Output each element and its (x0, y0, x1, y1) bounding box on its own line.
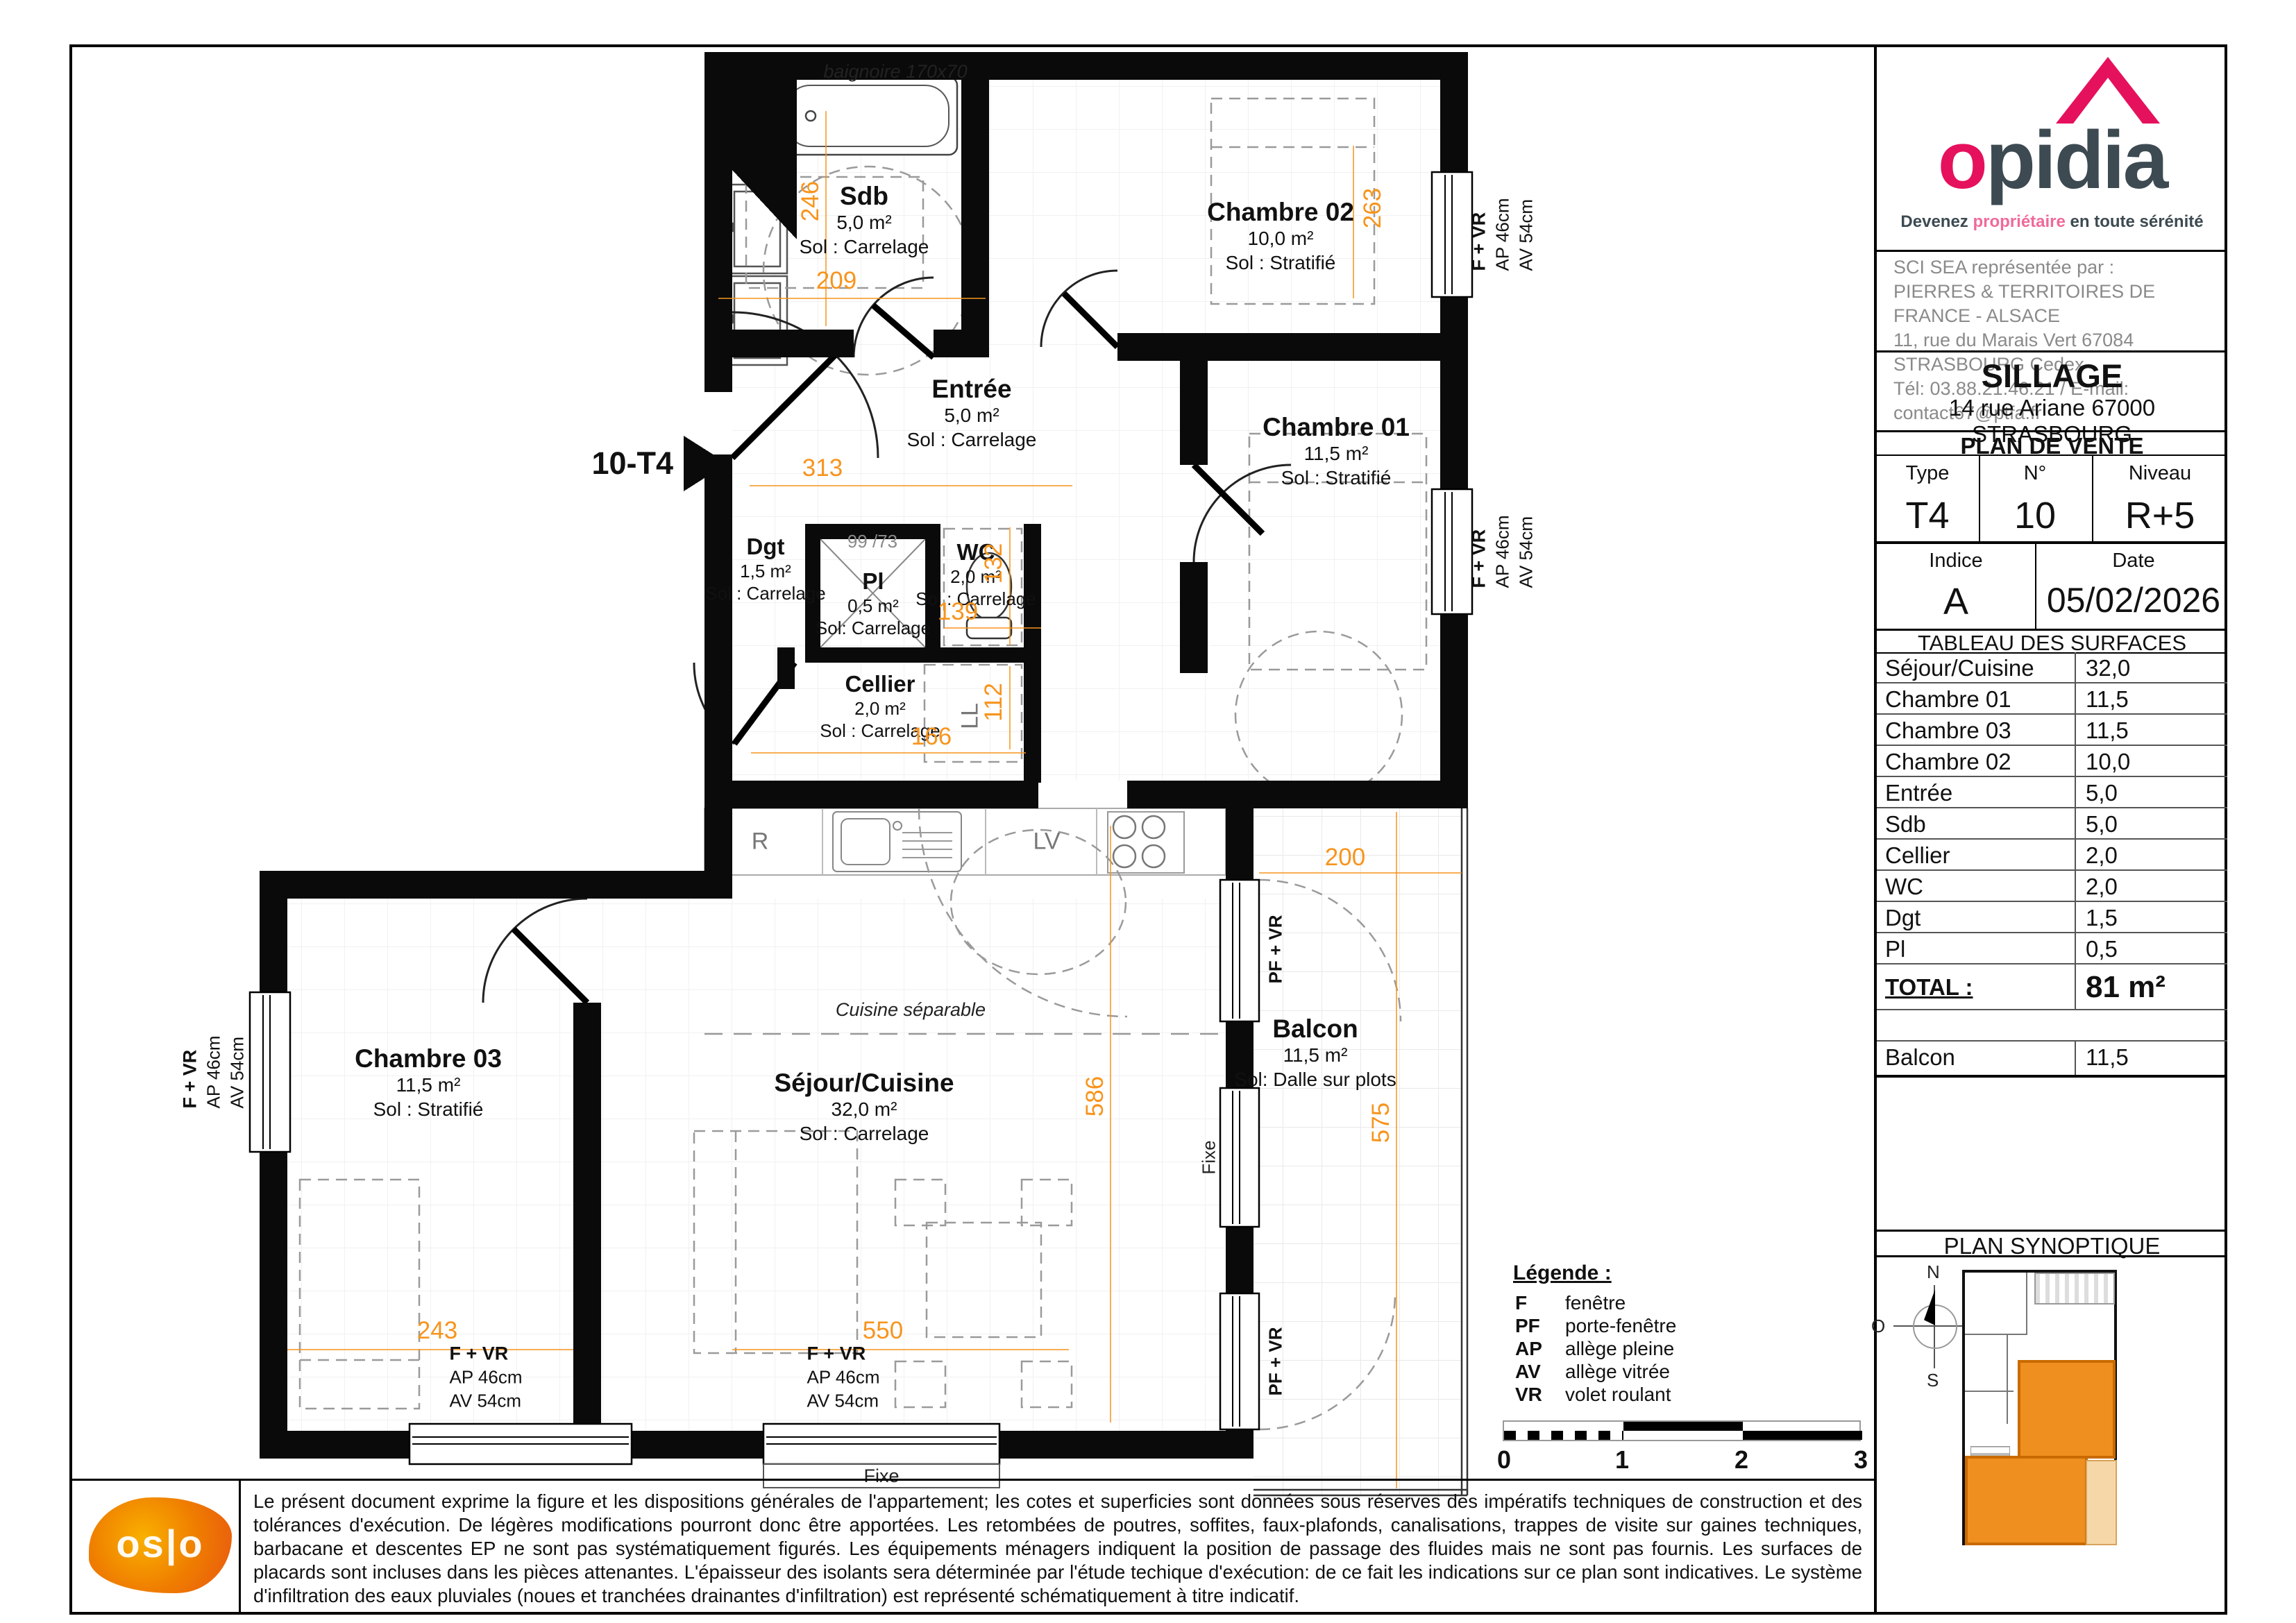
dim-chambre02-window: 263 (1359, 188, 1387, 228)
synoptique-apartment-upper (2018, 1360, 2116, 1459)
dim-balcon-width: 200 (1325, 844, 1365, 872)
legend-item-av: AVallège vitrée (1515, 1361, 1670, 1383)
surface-row: Cellier2,0 (1877, 840, 2227, 871)
dim-entree-width: 313 (802, 454, 843, 482)
bathtub-label: baignoire 170x70 (823, 61, 967, 83)
window-label-chambre03: F + VR AP 46cm AV 54cm (178, 1035, 250, 1108)
scale-tick-1: 1 (1615, 1445, 1629, 1475)
dim-sdb-width: 209 (816, 267, 856, 295)
surface-row: Chambre 0111,5 (1877, 683, 2227, 715)
oslo-logo: os|o (89, 1497, 232, 1593)
surface-row: Séjour/Cuisine32,0 (1877, 652, 2227, 683)
room-sejour-cuisine: Séjour/Cuisine 32,0 m² Sol : Carrelage (774, 1069, 954, 1146)
scale-bar (1503, 1420, 1861, 1441)
legend-title: Légende : (1513, 1261, 1612, 1285)
window-label-chambre03-bottom: F + VR AP 46cm AV 54cm (449, 1342, 522, 1413)
date-value: 05/02/2026 (2047, 580, 2220, 620)
indice-value: A (1943, 580, 1968, 623)
fridge-label: R (752, 829, 769, 856)
opidia-roof-icon (2056, 57, 2160, 124)
porte-fenetre-label-1: PF + VR (1265, 915, 1287, 984)
disclaimer-text: Le présent document exprime la figure et… (253, 1490, 1862, 1608)
type-label: Type (1906, 462, 1950, 485)
dim-sejour-height: 586 (1081, 1076, 1109, 1116)
scale-tick-0: 0 (1497, 1445, 1511, 1475)
project-name: SILLAGE (1877, 357, 2227, 395)
room-dgt: Dgt 1,5 m² Sol : Carrelage (705, 534, 825, 605)
synoptique-balcony (2086, 1460, 2117, 1545)
window-label-chambre01: F + VR AP 46cm AV 54cm (1467, 515, 1539, 588)
scale-tick-3: 3 (1854, 1445, 1868, 1475)
dim-wc-width: 139 (938, 598, 978, 626)
surface-balcon-row: Balcon11,5 (1877, 1042, 2227, 1078)
dim-wc-height: 132 (980, 543, 1008, 584)
brand-tagline: Devenez propriétaire en toute sérénité (1877, 212, 2227, 232)
surface-row: Chambre 0311,5 (1877, 715, 2227, 746)
indice-label: Indice (1929, 550, 1982, 572)
legend-item-ap: APallège pleine (1515, 1338, 1674, 1360)
synoptique-apartment-lower (1965, 1456, 2088, 1545)
room-chambre01: Chambre 01 11,5 m² Sol : Stratifié (1263, 413, 1410, 490)
synoptique-building (1962, 1270, 2117, 1545)
surfaces-table: Séjour/Cuisine32,0 Chambre 0111,5 Chambr… (1877, 652, 2227, 1078)
closet-dims: 99 /73 (847, 531, 897, 552)
dim-cellier-height: 112 (980, 683, 1008, 722)
dim-cellier-width: 166 (911, 723, 952, 751)
surface-spacer-row (1877, 1010, 2227, 1042)
dim-sejour-width: 550 (863, 1317, 903, 1345)
porte-fenetre-label-2: PF + VR (1265, 1327, 1287, 1396)
surface-row: WC2,0 (1877, 871, 2227, 902)
type-value: T4 (1905, 494, 1949, 537)
room-chambre03: Chambre 03 11,5 m² Sol : Stratifié (355, 1044, 502, 1121)
unit-marker: 10-T4 (552, 445, 673, 482)
date-label: Date (2112, 550, 2154, 572)
kitchen-note: Cuisine séparable (836, 999, 986, 1021)
fixe-window-label-vertical: Fixe (1199, 1140, 1220, 1174)
surface-total-row: TOTAL :81 m² (1877, 965, 2227, 1010)
num-label: N° (2024, 462, 2047, 485)
dim-chambre03-width: 243 (417, 1317, 457, 1345)
room-chambre02: Chambre 02 10,0 m² Sol : Stratifié (1207, 198, 1354, 275)
synoptique-title: PLAN SYNOPTIQUE (1877, 1230, 2227, 1257)
scale-tick-2: 2 (1734, 1445, 1748, 1475)
compass-north: N (1927, 1261, 1940, 1283)
compass-south: S (1927, 1370, 1939, 1391)
surface-row: Pl0,5 (1877, 933, 2227, 965)
num-value: 10 (2014, 494, 2056, 537)
surface-row: Entrée5,0 (1877, 777, 2227, 808)
legend-item-pf: PFporte-fenêtre (1515, 1315, 1676, 1337)
window-label-sejour-bottom: F + VR AP 46cm AV 54cm (807, 1342, 879, 1413)
compass-west: O (1871, 1316, 1885, 1337)
plan-de-vente-page: baignoire 170x70 Sdb 5,0 m² Sol : Carrel… (0, 0, 2296, 1623)
niveau-value: R+5 (2125, 494, 2195, 537)
surface-row: Sdb5,0 (1877, 808, 2227, 840)
dishwasher-label: LV (1033, 829, 1060, 856)
surface-row: Chambre 0210,0 (1877, 746, 2227, 777)
legend-item-vr: VRvolet roulant (1515, 1384, 1671, 1406)
surface-row: Dgt1,5 (1877, 902, 2227, 933)
room-balcon: Balcon 11,5 m² Sol: Dalle sur plots (1234, 1014, 1396, 1091)
fixe-window-label: Fixe (763, 1465, 999, 1487)
dim-sdb-height: 246 (797, 181, 825, 221)
opidia-logo: opidia (1877, 119, 2227, 201)
dim-balcon-height: 575 (1367, 1103, 1395, 1143)
room-pl: Pl 0,5 m² Sol: Carrelage (816, 569, 931, 640)
window-label-chambre02: F + VR AP 46cm AV 54cm (1467, 198, 1539, 271)
niveau-label: Niveau (2129, 462, 2191, 485)
legend-item-f: Ffenêtre (1515, 1292, 1626, 1314)
room-entree: Entrée 5,0 m² Sol : Carrelage (907, 375, 1037, 452)
